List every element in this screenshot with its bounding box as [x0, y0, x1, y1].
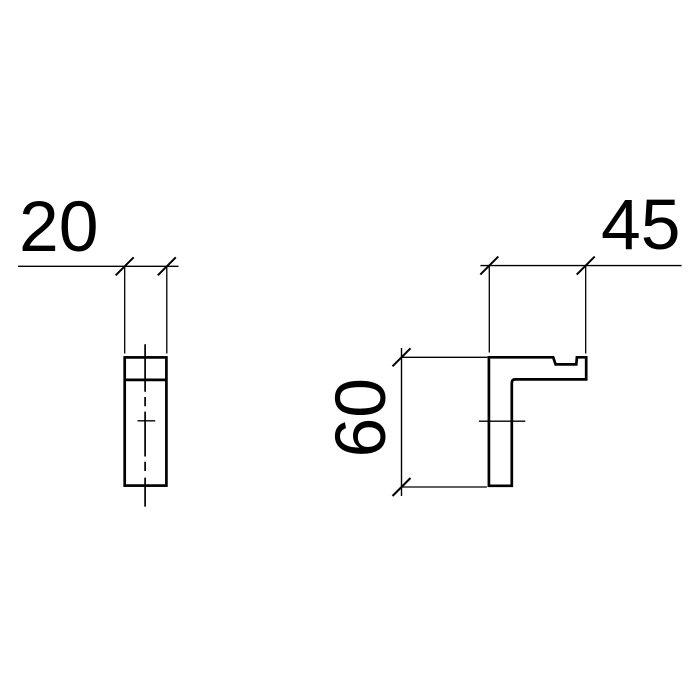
svg-text:45: 45: [601, 185, 681, 265]
svg-text:20: 20: [19, 187, 99, 267]
svg-text:60: 60: [321, 378, 401, 458]
